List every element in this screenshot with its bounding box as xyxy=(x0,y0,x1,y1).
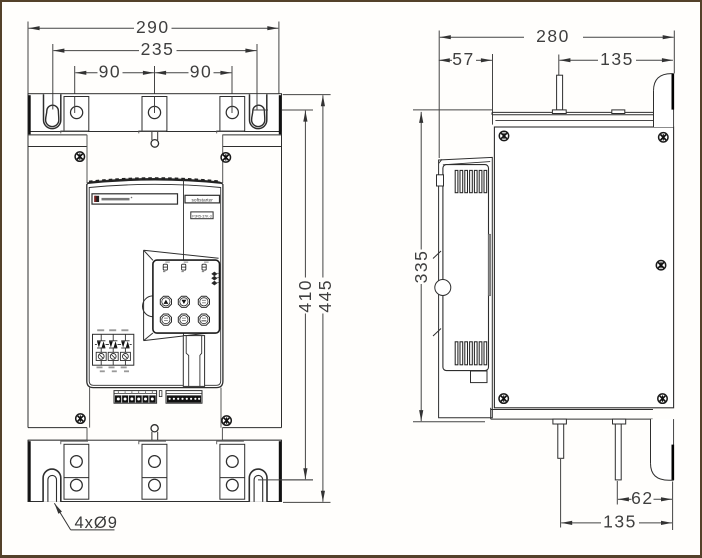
svg-text:135: 135 xyxy=(603,512,637,532)
svg-text:235: 235 xyxy=(141,39,175,59)
svg-text:290: 290 xyxy=(136,17,170,37)
svg-text:445: 445 xyxy=(315,279,335,313)
svg-text:PJR5-37K-3: PJR5-37K-3 xyxy=(192,214,212,218)
svg-text:softstarter: softstarter xyxy=(192,198,214,204)
svg-text:62: 62 xyxy=(631,488,653,508)
svg-text:280: 280 xyxy=(536,26,570,46)
svg-text:4xØ9: 4xØ9 xyxy=(75,514,118,532)
svg-text:57: 57 xyxy=(452,49,474,69)
svg-text:90: 90 xyxy=(190,61,212,81)
svg-text:410: 410 xyxy=(295,279,315,313)
svg-text:135: 135 xyxy=(600,49,634,69)
svg-text:335: 335 xyxy=(411,250,431,284)
svg-text:90: 90 xyxy=(99,61,121,81)
